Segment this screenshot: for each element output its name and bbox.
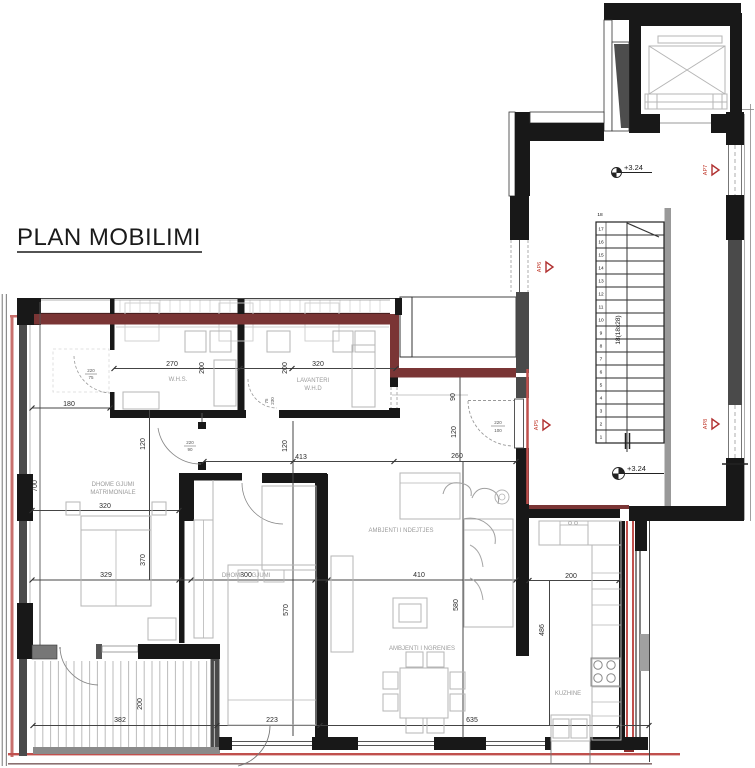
svg-text:18(18x28): 18(18x28)	[615, 315, 622, 344]
svg-text:200: 200	[282, 362, 289, 374]
svg-text:180: 180	[63, 401, 75, 408]
svg-text:200: 200	[565, 573, 577, 580]
svg-text:KUZHINE: KUZHINE	[555, 691, 581, 697]
svg-text:15: 15	[598, 253, 604, 259]
svg-text:230: 230	[270, 397, 275, 405]
svg-text:260: 260	[451, 453, 463, 460]
svg-text:75: 75	[88, 375, 94, 380]
svg-text:10: 10	[598, 318, 604, 324]
svg-text:GJUMI: GJUMI	[252, 573, 271, 579]
svg-text:382: 382	[114, 717, 126, 724]
svg-text:7: 7	[600, 357, 603, 363]
svg-text:410: 410	[413, 572, 425, 579]
svg-text:W.H.D: W.H.D	[304, 386, 322, 392]
svg-text:AMBJENTI I NDEJTJES: AMBJENTI I NDEJTJES	[368, 528, 433, 534]
svg-text:AP5: AP5	[534, 420, 540, 430]
svg-text:+3.24: +3.24	[624, 163, 643, 172]
svg-text:320: 320	[99, 503, 111, 510]
svg-text:580: 580	[453, 599, 460, 611]
svg-text:6: 6	[600, 370, 603, 376]
svg-text:413: 413	[295, 454, 307, 461]
svg-text:486: 486	[539, 624, 546, 636]
svg-text:DHOME GJUMI: DHOME GJUMI	[92, 482, 135, 488]
svg-text:2: 2	[600, 422, 603, 428]
svg-text:MATRIMONIALE: MATRIMONIALE	[90, 490, 135, 496]
svg-text:270: 270	[166, 361, 178, 368]
svg-text:AP7: AP7	[703, 165, 709, 175]
svg-text:14: 14	[598, 266, 604, 272]
svg-text:100: 100	[494, 428, 502, 433]
svg-text:4: 4	[600, 396, 603, 402]
svg-text:DHOME: DHOME	[222, 573, 244, 579]
svg-text:320: 320	[312, 361, 324, 368]
svg-text:220: 220	[87, 368, 95, 373]
svg-text:120: 120	[282, 440, 289, 452]
svg-text:13: 13	[598, 279, 604, 285]
svg-text:120: 120	[140, 438, 147, 450]
svg-text:AMBJENTI I NGRENIES: AMBJENTI I NGRENIES	[389, 646, 455, 652]
svg-text:370: 370	[140, 554, 147, 566]
svg-text:90: 90	[187, 447, 193, 452]
svg-text:AP6: AP6	[537, 262, 543, 272]
svg-text:220: 220	[186, 440, 194, 445]
svg-text:18: 18	[597, 212, 603, 218]
svg-text:12: 12	[598, 292, 604, 298]
svg-text:11: 11	[599, 305, 604, 311]
svg-text:75: 75	[264, 398, 269, 404]
svg-text:8: 8	[600, 344, 603, 350]
svg-text:9: 9	[600, 331, 603, 337]
svg-text:17: 17	[598, 227, 604, 233]
svg-text:200: 200	[199, 362, 206, 374]
svg-text:5: 5	[600, 383, 603, 389]
svg-text:220: 220	[494, 420, 502, 425]
svg-text:90: 90	[450, 393, 457, 401]
svg-text:329: 329	[100, 572, 112, 579]
svg-text:635: 635	[466, 717, 478, 724]
svg-text:700: 700	[32, 480, 39, 492]
svg-text:1: 1	[600, 435, 603, 441]
svg-text:223: 223	[266, 717, 278, 724]
svg-text:200: 200	[137, 698, 144, 710]
svg-text:AP8: AP8	[703, 419, 709, 429]
svg-text:570: 570	[283, 604, 290, 616]
svg-text:3: 3	[600, 409, 603, 415]
svg-text:LAVANTERI: LAVANTERI	[297, 378, 330, 384]
svg-text:16: 16	[598, 240, 604, 246]
svg-text:W.H.S.: W.H.S.	[169, 377, 188, 383]
svg-text:PLAN MOBILIMI: PLAN MOBILIMI	[17, 224, 201, 251]
svg-text:+3.24: +3.24	[627, 464, 646, 473]
svg-text:120: 120	[451, 426, 458, 438]
